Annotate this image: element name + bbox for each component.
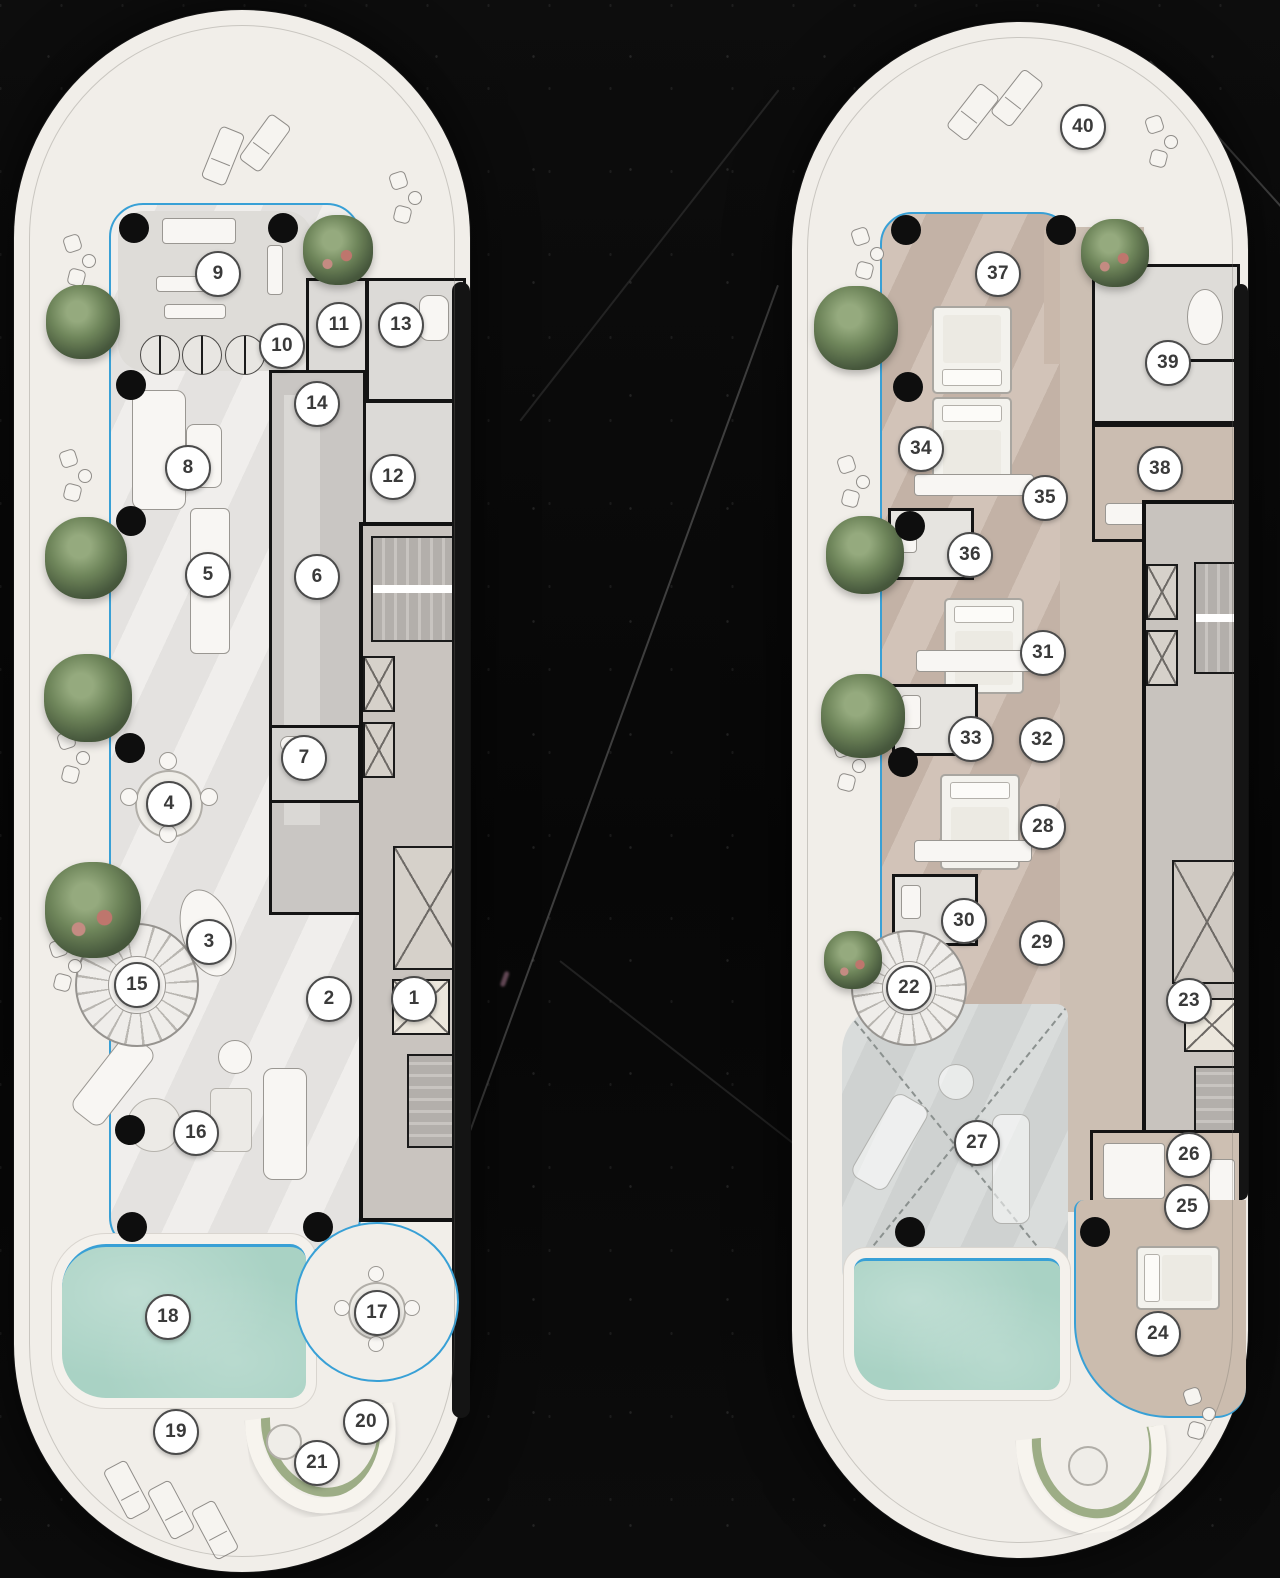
room-marker-24: 24 — [1135, 1311, 1181, 1357]
chair-icon — [1144, 114, 1165, 135]
pool — [854, 1258, 1060, 1390]
chair-icon — [836, 772, 857, 793]
room-marker-35: 35 — [1022, 475, 1068, 521]
column-icon — [895, 511, 925, 541]
chair-icon — [404, 1300, 420, 1316]
column-icon — [895, 1217, 925, 1247]
plant-icon — [826, 516, 904, 594]
service-core — [1142, 500, 1244, 1162]
room-marker-18: 18 — [145, 1294, 191, 1340]
room-marker-21: 21 — [294, 1440, 340, 1486]
room-marker-13: 13 — [378, 302, 424, 348]
chair-icon — [368, 1266, 384, 1282]
seating-group-icon — [1182, 1388, 1222, 1442]
room-marker-34: 34 — [898, 426, 944, 472]
seating-group-icon — [850, 228, 890, 282]
plant-icon — [45, 517, 127, 599]
room-marker-7: 7 — [281, 735, 327, 781]
shaft-icon — [1146, 564, 1178, 620]
chair-icon — [840, 488, 861, 509]
room-marker-26: 26 — [1166, 1132, 1212, 1178]
circle-door-icon — [182, 335, 222, 375]
room-marker-8: 8 — [165, 445, 211, 491]
room-marker-23: 23 — [1166, 978, 1212, 1024]
plant-icon — [45, 862, 141, 958]
chair-icon — [388, 170, 409, 191]
chair-icon — [854, 260, 875, 281]
chair-icon — [1182, 1386, 1203, 1407]
column-icon — [119, 213, 149, 243]
side-table-icon — [76, 751, 90, 765]
column-icon — [117, 1212, 147, 1242]
plant-icon — [814, 286, 898, 370]
chair-icon — [334, 1300, 350, 1316]
side-table-icon — [1202, 1407, 1216, 1421]
side-table-icon — [852, 759, 866, 773]
floor-plan-right: 22232425262728293031323334353637383940 — [792, 22, 1248, 1558]
sun-lounger-icon — [146, 1479, 195, 1541]
sofa-icon — [992, 1114, 1030, 1224]
floor-plan-poster: { "scene": { "description": "Two pill-sh… — [0, 0, 1280, 1578]
side-table-icon — [408, 191, 422, 205]
room-marker-20: 20 — [343, 1399, 389, 1445]
column-icon — [888, 747, 918, 777]
column-icon — [115, 733, 145, 763]
room-marker-10: 10 — [259, 323, 305, 369]
seating-group-icon — [58, 450, 98, 504]
chair-icon — [159, 752, 177, 770]
chair-icon — [52, 972, 73, 993]
plant-icon — [303, 215, 373, 285]
column-icon — [115, 1115, 145, 1145]
column-icon — [268, 213, 298, 243]
sun-lounger-icon — [238, 113, 292, 174]
weight-rack-icon — [164, 304, 226, 319]
sofa-icon — [1103, 1143, 1165, 1199]
chair-icon — [392, 204, 413, 225]
column-icon — [116, 506, 146, 536]
dresser-icon — [916, 650, 1034, 672]
room-marker-31: 31 — [1020, 630, 1066, 676]
room-marker-17: 17 — [354, 1290, 400, 1336]
chair-icon — [200, 788, 218, 806]
side-table-icon — [78, 469, 92, 483]
seating-group-icon — [1144, 116, 1184, 170]
room-marker-40: 40 — [1060, 104, 1106, 150]
sofa-icon — [263, 1068, 307, 1180]
chair-icon — [1186, 1420, 1207, 1441]
chair-icon — [1148, 148, 1169, 169]
room-marker-5: 5 — [185, 552, 231, 598]
room-marker-12: 12 — [370, 454, 416, 500]
room-marker-32: 32 — [1019, 717, 1065, 763]
facade-wall — [1234, 284, 1248, 1200]
shaft-icon — [363, 722, 395, 778]
chair-icon — [58, 448, 79, 469]
bathtub-icon — [1187, 289, 1223, 345]
room-marker-2: 2 — [306, 976, 352, 1022]
armchair-icon — [938, 1064, 974, 1100]
shaft-icon — [363, 656, 395, 712]
room-marker-37: 37 — [975, 251, 1021, 297]
dresser-icon — [914, 474, 1034, 496]
side-table-icon — [82, 254, 96, 268]
facade-wall — [452, 282, 470, 1418]
room-marker-33: 33 — [948, 716, 994, 762]
room-marker-25: 25 — [1164, 1184, 1210, 1230]
fire-pit-icon — [1068, 1446, 1108, 1486]
interior-rooms-block — [269, 370, 366, 915]
plant-icon — [821, 674, 905, 758]
staircase — [371, 536, 465, 642]
chair-icon — [120, 788, 138, 806]
room-marker-30: 30 — [941, 898, 987, 944]
room-marker-36: 36 — [947, 532, 993, 578]
room-marker-15: 15 — [114, 962, 160, 1008]
floor-plan-left: 123456789101112131415161718192021 — [14, 10, 470, 1572]
room-marker-29: 29 — [1019, 920, 1065, 966]
column-icon — [1080, 1217, 1110, 1247]
room-marker-3: 3 — [186, 919, 232, 965]
room-marker-19: 19 — [153, 1409, 199, 1455]
side-table-icon — [68, 959, 82, 973]
room-marker-11: 11 — [316, 302, 362, 348]
room-marker-6: 6 — [294, 554, 340, 600]
armchair-icon — [218, 1040, 252, 1074]
sofa-icon — [849, 1090, 932, 1193]
room-marker-28: 28 — [1020, 804, 1066, 850]
chair-icon — [836, 454, 857, 475]
washbasin-icon — [419, 295, 449, 341]
side-table-icon — [856, 475, 870, 489]
shaft-icon — [1146, 630, 1178, 686]
chair-icon — [159, 825, 177, 843]
plant-icon — [46, 285, 120, 359]
room-marker-9: 9 — [195, 251, 241, 297]
column-icon — [891, 215, 921, 245]
gym-machine-icon — [267, 245, 283, 295]
sun-lounger-icon — [102, 1459, 151, 1521]
plant-icon — [824, 931, 882, 989]
armchair-icon — [1209, 1159, 1235, 1205]
room-marker-22: 22 — [886, 965, 932, 1011]
bed-icon — [932, 306, 1012, 394]
room-marker-14: 14 — [294, 381, 340, 427]
side-table-icon — [870, 247, 884, 261]
chair-icon — [62, 482, 83, 503]
room-marker-16: 16 — [173, 1110, 219, 1156]
column-icon — [893, 372, 923, 402]
dresser-icon — [914, 840, 1032, 862]
plant-icon — [44, 654, 132, 742]
side-table-icon — [1164, 135, 1178, 149]
seating-group-icon — [836, 456, 876, 510]
chair-icon — [60, 764, 81, 785]
seating-group-icon — [62, 235, 102, 289]
column-icon — [303, 1212, 333, 1242]
treadmill-icon — [162, 218, 236, 244]
room-marker-27: 27 — [954, 1120, 1000, 1166]
circle-door-icon — [140, 335, 180, 375]
chair-icon — [368, 1336, 384, 1352]
bed-icon — [944, 598, 1024, 694]
column-icon — [1046, 215, 1076, 245]
room-marker-39: 39 — [1145, 340, 1191, 386]
column-icon — [116, 370, 146, 400]
plant-icon — [1081, 219, 1149, 287]
chair-icon — [62, 233, 83, 254]
room-marker-1: 1 — [391, 976, 437, 1022]
bed-icon — [1136, 1246, 1220, 1310]
seating-group-icon — [388, 172, 428, 226]
elevator-icon — [1172, 860, 1242, 984]
sun-lounger-icon — [190, 1499, 239, 1561]
shower-icon — [901, 885, 921, 919]
room-marker-4: 4 — [146, 781, 192, 827]
room-marker-38: 38 — [1137, 446, 1183, 492]
chair-icon — [850, 226, 871, 247]
